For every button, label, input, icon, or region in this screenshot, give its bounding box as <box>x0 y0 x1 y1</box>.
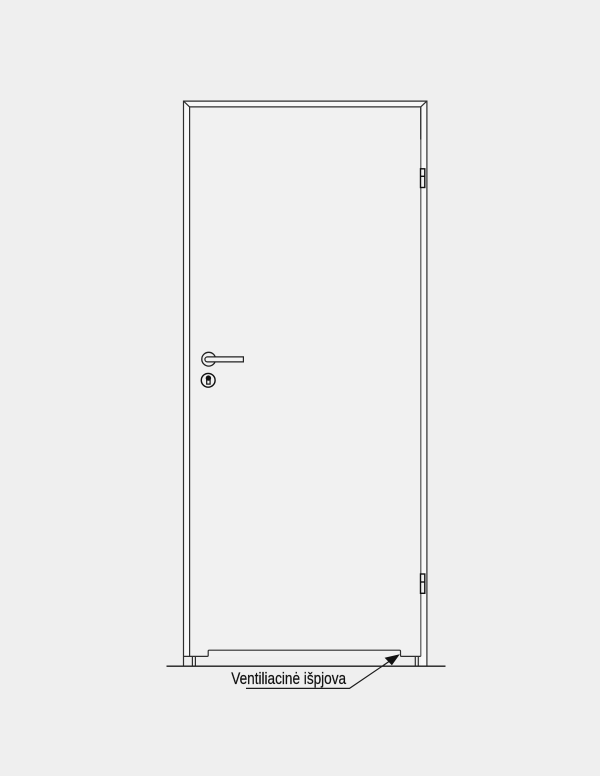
svg-text:Ventiliacinė išpjova: Ventiliacinė išpjova <box>231 669 346 688</box>
